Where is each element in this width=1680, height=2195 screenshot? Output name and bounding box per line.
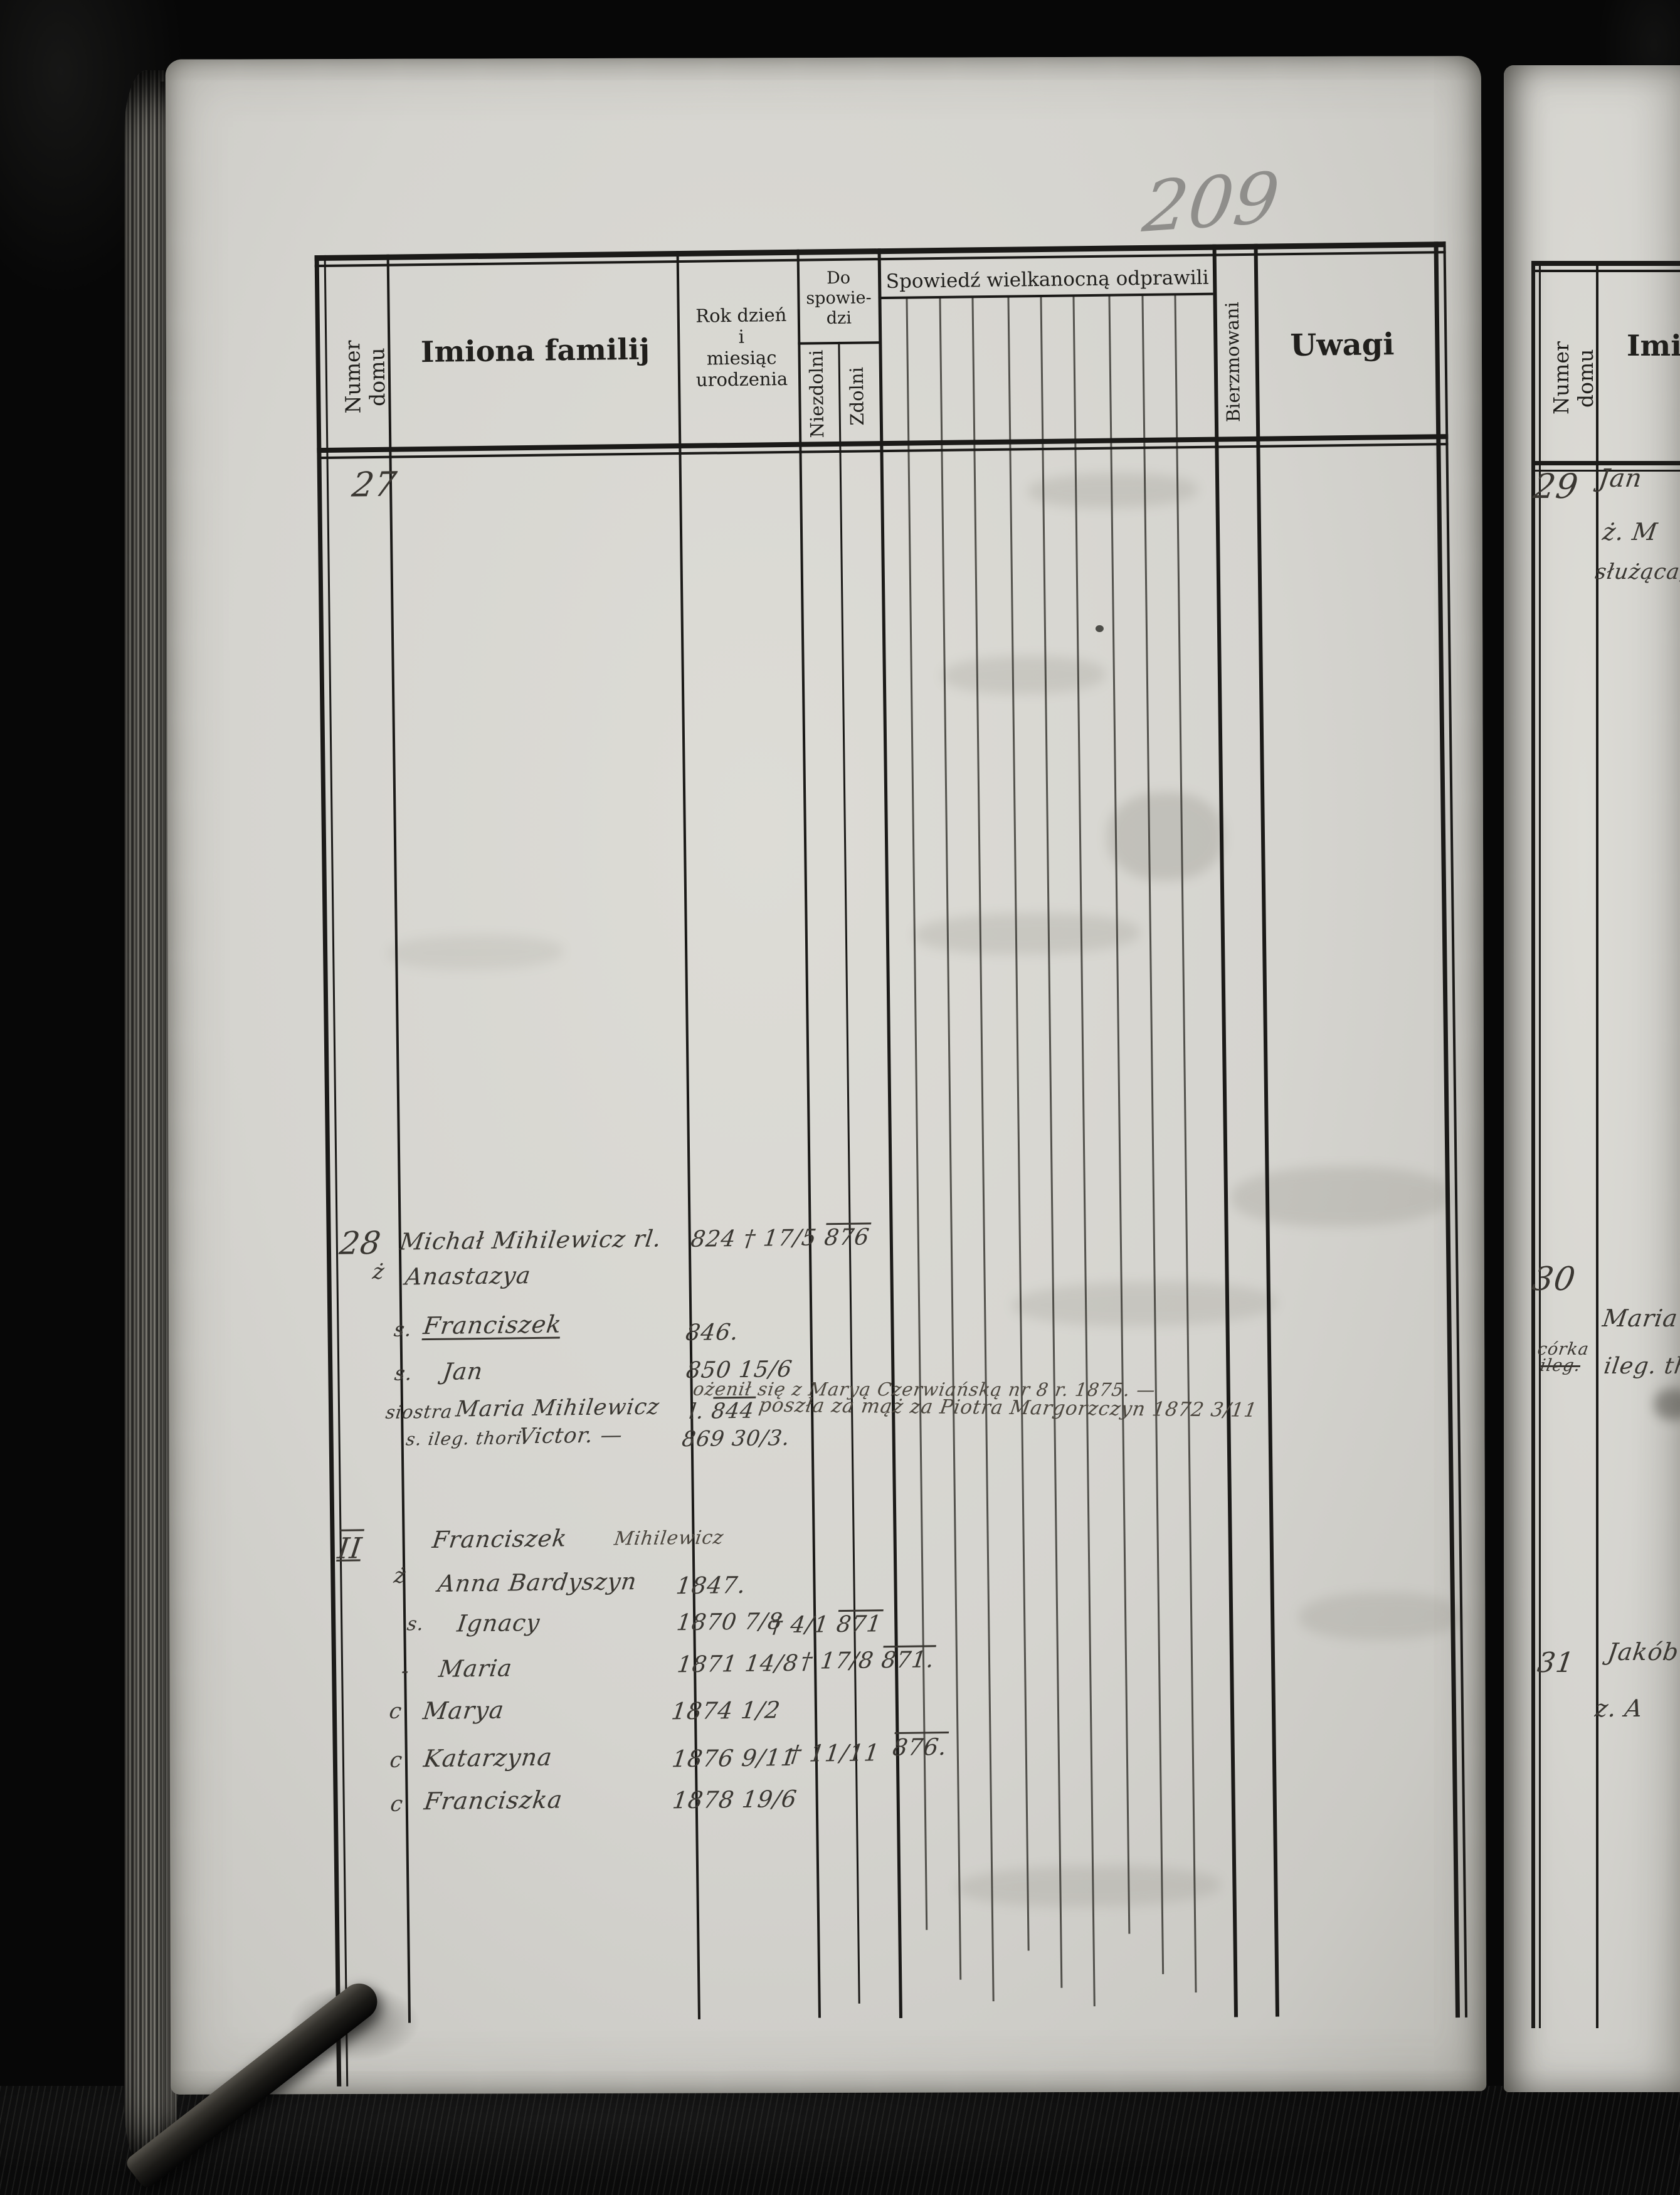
ink-bleedthrough [1299,1592,1462,1641]
entry28-son2-prefix: s. [393,1361,414,1385]
ink-bleedthrough [388,934,564,970]
entry28-son3-birth: 869 30/3. [680,1425,791,1452]
col-header-numer-domu: Numer domu [340,311,371,443]
col-header-do-spowiedzi-line: Do [801,268,876,288]
house-number-27: 27 [350,465,399,505]
entryII-child5-name: Franciszka [423,1785,564,1815]
ink-bleedthrough [957,1864,1221,1908]
bierzmowani-border-right [1254,244,1279,2017]
entryII-head-surname: Mihilewicz [613,1526,725,1550]
entryII-child1-birth: 1870 7/8 [675,1609,785,1636]
ink-spot [1096,625,1104,632]
right-entry29-line3: służąca, [1593,559,1680,584]
entryII-child2-death: † 17/8 871. [799,1647,936,1674]
entryII-child1-name: Ignacy [455,1609,541,1637]
entry28-son1-prefix: s. [393,1317,413,1341]
entryII-child1-prefix: s. [406,1613,425,1635]
bierzmowani-border-left [1212,245,1238,2018]
right-table-border-top-outer [1531,261,1680,266]
confession-column-line [906,299,927,1930]
col-header-rok: Rok dzień i miesiąc urodzenia [691,304,793,391]
entryII-child3-name: Marya [421,1696,505,1725]
entryII-child5-birth: 1878 19/6 [671,1785,799,1814]
entryII-child2-birth: 1871 14/8 [675,1651,800,1678]
entryII-child4-name: Katarzyna [422,1743,554,1773]
right-col-header-imiona-partial: Imi [1627,329,1680,362]
right-col-header-numer-domu: Numer domu [1549,312,1578,444]
entry28-wife-name: Anastazya [404,1262,532,1291]
entryII-child2-name: Maria [437,1654,514,1682]
right-entry31-line2: z. A [1593,1695,1645,1722]
right-entry30-line1: Maria [1601,1304,1680,1332]
entryII-child3-prefix: c [388,1699,403,1724]
entryII-child2-death-year: 871. [880,1647,936,1673]
entryII-wife-name: Anna Bardyszyn [436,1568,638,1597]
col-header-niezdolni: Niezdolni [805,338,833,450]
entry28-sister-birth-prefix: l. [688,1399,706,1424]
entryII-child1-death-year: 871 [835,1611,884,1637]
col-header-bierzmowani: Bierzmowani [1222,309,1249,422]
entryII-child2-death-date: † 17/8 [799,1648,875,1674]
confession-column-line [1174,295,1197,1992]
right-entry31-line1: Jakób [1606,1638,1680,1666]
right-column-line-numer [1596,261,1598,2028]
entry28-sister-prefix: siostra [384,1401,454,1423]
ink-bleedthrough [1230,1165,1450,1227]
col-header-imiona-familij: Imiona familij [416,332,655,369]
entry28-sister-name: Maria Mihilewicz [455,1395,662,1422]
right-house-number-30: 30 [1530,1261,1578,1298]
entry28-son3-name: Victor. — [517,1422,624,1449]
right-house-number-29: 29 [1531,467,1582,506]
confession-column-line [1040,297,1062,1988]
confession-column-line [1072,296,1095,2006]
entry28-wife-prefix: ż [371,1259,386,1284]
entryII-child4-prefix: c [388,1748,404,1773]
ink-bleedthrough [1107,791,1224,881]
right-table-border-top-inner [1531,270,1680,272]
col-header-zdolni: Zdolni [845,346,873,447]
col-header-do-spowiedzi-line: dzi [801,308,877,329]
entry28-head-birth: 824 † 17/5 876 [689,1224,871,1252]
right-page: Numer domu Imi 29 Jan ż. M służąca, 30 M… [1504,65,1680,2092]
scanned-register-photo: 209 [0,0,1680,2195]
col-header-rok-line: urodzenia [692,368,792,391]
left-page: 209 [166,56,1486,2094]
col-header-spowiedz-wielkanocna: Spowiedź wielkanocną odprawili [884,267,1210,293]
right-table-border-left-inner [1539,261,1541,2028]
spowiedz-header-underline [878,293,1213,300]
entryII-wife-birth: 1847. [675,1572,748,1599]
entry28-son1-name: Franciszek [422,1310,564,1340]
entryII-child4-birth: 1876 9/11 [670,1744,798,1772]
right-entry29-line2: ż. M [1601,518,1659,546]
col-header-do-spowiedzi-line: spowie- [801,288,876,309]
ink-spot-right-page [1654,1388,1680,1420]
entry28-son1-birth: 846. [684,1320,740,1346]
confession-column-line [1108,296,1130,1934]
entry28-sister-marriage-note: poszła za mąż za Piotra Margorzczyn 1872… [758,1394,1259,1422]
col-header-uwagi: Uwagi [1279,327,1405,363]
house-number-28: 28 [337,1225,383,1262]
confession-column-line [1007,297,1029,1951]
entry28-son3-prefix: s. ileg. thori. [405,1427,530,1449]
col-header-do-spowiedzi: Do spowie- dzi [801,268,877,329]
entryII-head-name: Franciszek [431,1525,569,1553]
confession-column-line [971,297,994,2001]
right-entry30-sub-struck: ileg. [1539,1356,1582,1375]
right-house-number-31: 31 [1535,1647,1576,1679]
entryII-child4-death: † 11/11 [788,1739,881,1767]
entryII-number: II [335,1531,364,1565]
confession-column-line [939,298,961,1980]
col-header-rok-line: Rok dzień [691,304,791,327]
entry28-head-death-year: 876 [823,1224,871,1251]
col-header-rok-line: i [691,325,791,348]
right-entry30-line2: ileg. ther [1602,1353,1680,1379]
left-page-table: Numer domu Imiona familij Rok dzień i mi… [164,45,1504,2095]
entryII-child3-birth: 1874 1/2 [670,1696,782,1725]
confession-column-line [1141,295,1164,1974]
entryII-child2-prefix: - [400,1658,411,1683]
entry28-sister-birth-year: 844 [710,1399,756,1424]
ink-bleedthrough [942,655,1106,695]
entry28-head-name: Michał Mihilewicz rl. [398,1225,663,1255]
entry28-son2-name: Jan [441,1358,485,1385]
col-header-rok-line: miesiąc [691,347,791,369]
entryII-child1-death: † 4/1 871 [769,1611,884,1638]
entryII-child1-death-date: † 4/1 [769,1612,831,1638]
entry28-head-birth-date: 824 † 17/5 [689,1225,818,1252]
right-table-border-left-outer [1531,261,1535,2028]
entry28-sister-birth: l. 844 [688,1399,756,1424]
entryII-child4-confession-year: 876. [891,1733,949,1761]
entryII-child5-prefix: c [389,1792,404,1817]
right-entry29-line1: Jan [1597,464,1644,493]
